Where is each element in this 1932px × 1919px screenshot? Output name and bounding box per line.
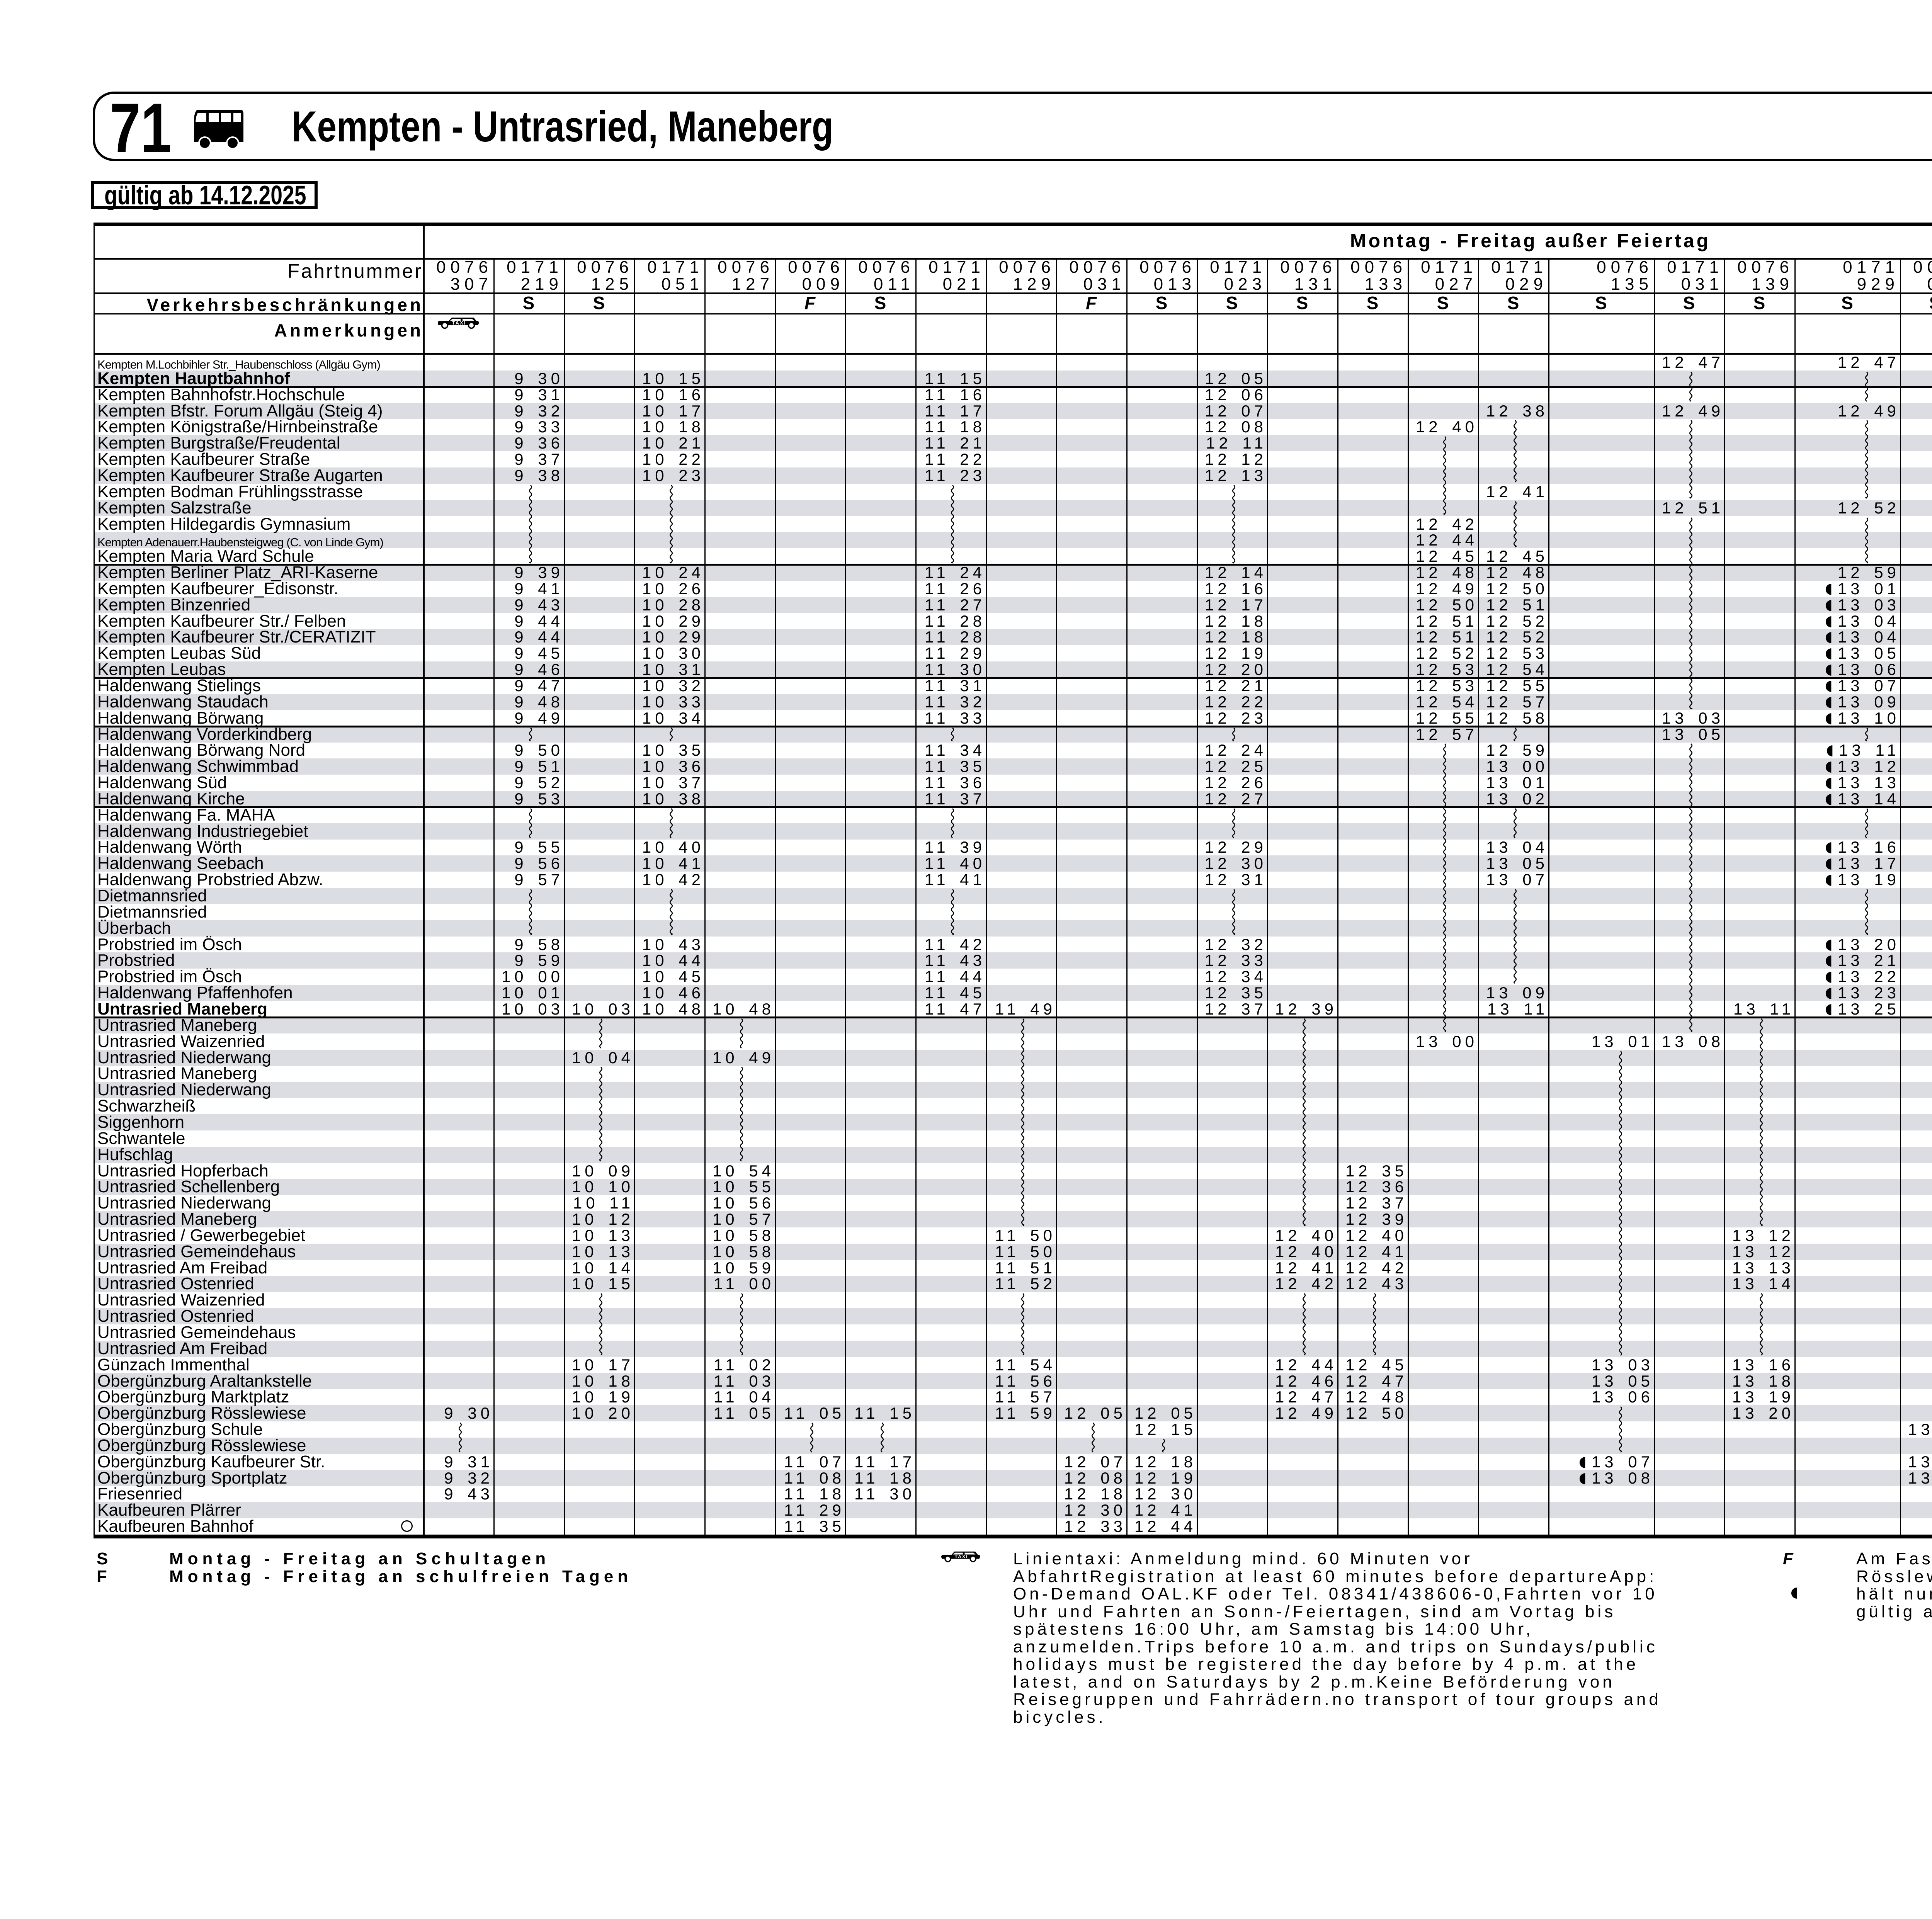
svg-text:TAXI: TAXI bbox=[452, 320, 466, 326]
svg-text:TAXI: TAXI bbox=[955, 1554, 968, 1559]
